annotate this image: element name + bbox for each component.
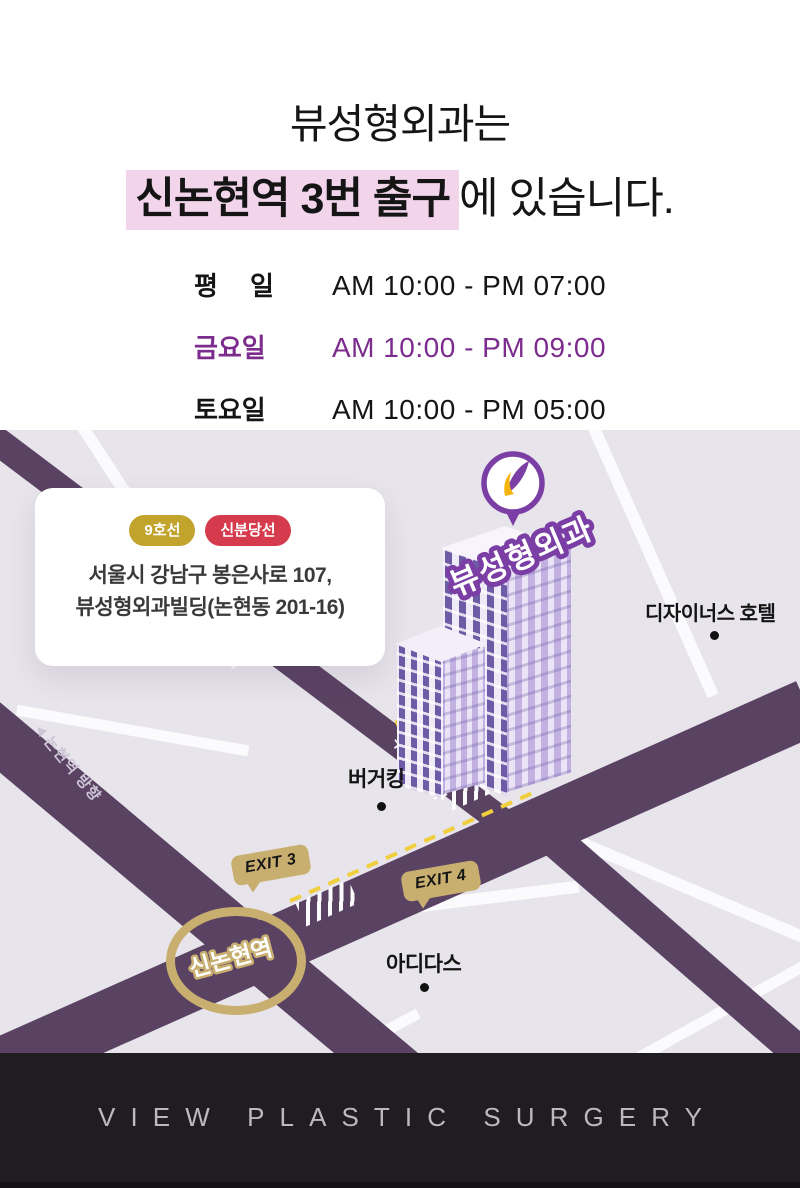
address-line1: 서울시 강남구 봉은사로 107, <box>35 560 385 592</box>
shinbundang-badge: 신분당선 <box>205 515 290 546</box>
direction-arrow-icon <box>34 724 47 737</box>
page-title-line2: 신논현역 3번 출구에 있습니다. <box>0 164 800 226</box>
header-section: 뷰성형외과는 신논현역 3번 출구에 있습니다. 평 일 AM 10:00 - … <box>0 0 800 430</box>
clinic-address: 서울시 강남구 봉은사로 107, 뷰성형외과빌딩(논현동 201-16) <box>35 560 385 623</box>
hours-row-friday: 금요일 AM 10:00 - PM 09:00 <box>194 328 606 365</box>
hours-day-label: 평 일 <box>194 266 274 303</box>
page-title-line1: 뷰성형외과는 <box>0 90 800 150</box>
poi-adidas: 아디다스 <box>386 948 461 978</box>
sinnonhyeon-station-oval: 신논현역 <box>166 907 306 1015</box>
road-branch-southeast <box>541 825 800 1053</box>
clinic-logo-pin-icon <box>477 446 549 542</box>
hours-time-value: AM 10:00 - PM 09:00 <box>332 332 606 364</box>
hours-day-label: 금요일 <box>194 328 274 365</box>
station-name: 신논현역 <box>186 935 274 982</box>
footer-section: VIEW PLASTIC SURGERY <box>0 1053 800 1188</box>
poi-burger-king: 버거킹 <box>348 763 404 793</box>
poi-dot <box>420 983 429 992</box>
page: 뷰성형외과는 신논현역 3번 출구에 있습니다. 평 일 AM 10:00 - … <box>0 0 800 1188</box>
hours-row-weekday: 평 일 AM 10:00 - PM 07:00 <box>194 266 606 303</box>
hours-time-value: AM 10:00 - PM 05:00 <box>332 394 606 426</box>
hours-day-label: 토요일 <box>194 390 274 427</box>
address-card: 9호선 신분당선 서울시 강남구 봉은사로 107, 뷰성형외과빌딩(논현동 2… <box>35 488 385 666</box>
poi-dot <box>377 802 386 811</box>
subway-line-badges: 9호선 신분당선 <box>35 515 385 546</box>
line9-badge: 9호선 <box>129 515 195 546</box>
station-highlight: 신논현역 3번 출구 <box>126 170 459 230</box>
poi-dot <box>710 631 719 640</box>
title-line2-rest: 에 있습니다. <box>459 175 674 223</box>
address-line2: 뷰성형외과빌딩(논현동 201-16) <box>35 592 385 624</box>
brand-name: VIEW PLASTIC SURGERY <box>83 1102 717 1133</box>
building-face <box>443 647 485 794</box>
location-map: 주차장 입구 논현역 방향 9호선 신분당선 서울시 강남구 봉은사로 107,… <box>0 430 800 1053</box>
hours-row-saturday: 토요일 AM 10:00 - PM 05:00 <box>194 390 606 427</box>
opening-hours: 평 일 AM 10:00 - PM 07:00 금요일 AM 10:00 - P… <box>194 266 606 427</box>
poi-designers-hotel: 디자이너스 호텔 <box>645 597 775 626</box>
exit3-bubble: EXIT 3 <box>230 843 312 886</box>
hours-time-value: AM 10:00 - PM 07:00 <box>332 270 606 302</box>
